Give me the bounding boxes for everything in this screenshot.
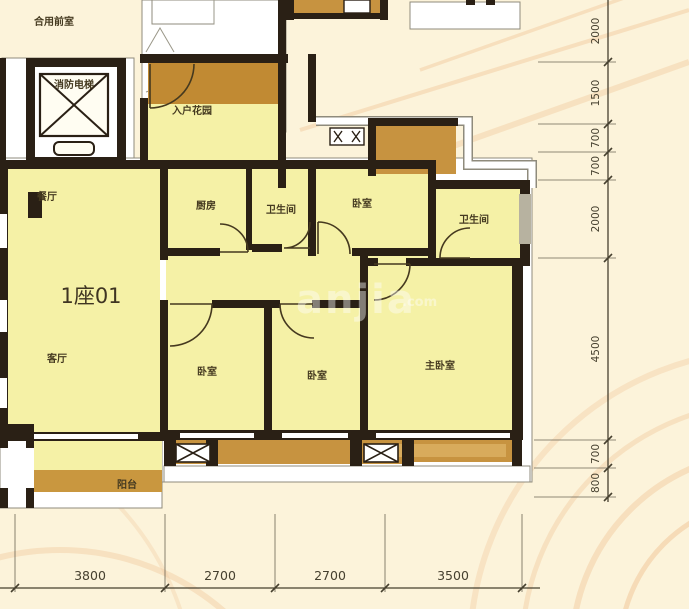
dim-right-0: 2000 [590, 18, 602, 45]
bath-right-label: 卫生间 [459, 213, 489, 226]
bedroom-left-label: 卧室 [197, 365, 217, 378]
dim-right-6: 700 [590, 444, 602, 464]
dim-bottom-0: 3800 [74, 568, 106, 583]
dim-right-4: 2000 [590, 206, 602, 233]
kitchen-label: 厨房 [196, 199, 216, 212]
entry-garden-label: 入户花园 [172, 104, 212, 117]
watermark-suffix: .com [402, 295, 437, 310]
dim-right-1: 1500 [590, 80, 602, 107]
dim-right-5: 4500 [590, 336, 602, 363]
dim-right-7: 800 [590, 473, 602, 493]
balcony-label: 阳台 [117, 478, 137, 491]
watermark-text: anjia [296, 277, 416, 323]
floorplan-image: 合用前室 消防电梯 入户花园 餐厅 厨房 卫生间 卧室 卫生间 1座01 客厅 … [0, 0, 689, 609]
unit-title: 1座01 [60, 284, 121, 308]
fire-elevator-label: 消防电梯 [54, 78, 94, 91]
bath-small-label: 卫生间 [266, 203, 296, 216]
master-bedroom-label: 主卧室 [425, 359, 455, 372]
dim-bottom-3: 3500 [437, 568, 469, 583]
dim-right-3: 700 [590, 156, 602, 176]
dim-bottom-2: 2700 [314, 568, 346, 583]
bath-window [519, 194, 531, 244]
shared-vestibule-label: 合用前室 [33, 15, 74, 28]
dim-bottom-1: 2700 [204, 568, 236, 583]
dim-right-2: 700 [590, 128, 602, 148]
floorplan-svg: 合用前室 消防电梯 入户花园 餐厅 厨房 卫生间 卧室 卫生间 1座01 客厅 … [0, 0, 689, 609]
living-label: 客厅 [46, 352, 67, 365]
dining-label: 餐厅 [36, 190, 57, 203]
bedroom-top-label: 卧室 [352, 197, 372, 210]
bedroom-mid-label: 卧室 [307, 369, 327, 382]
